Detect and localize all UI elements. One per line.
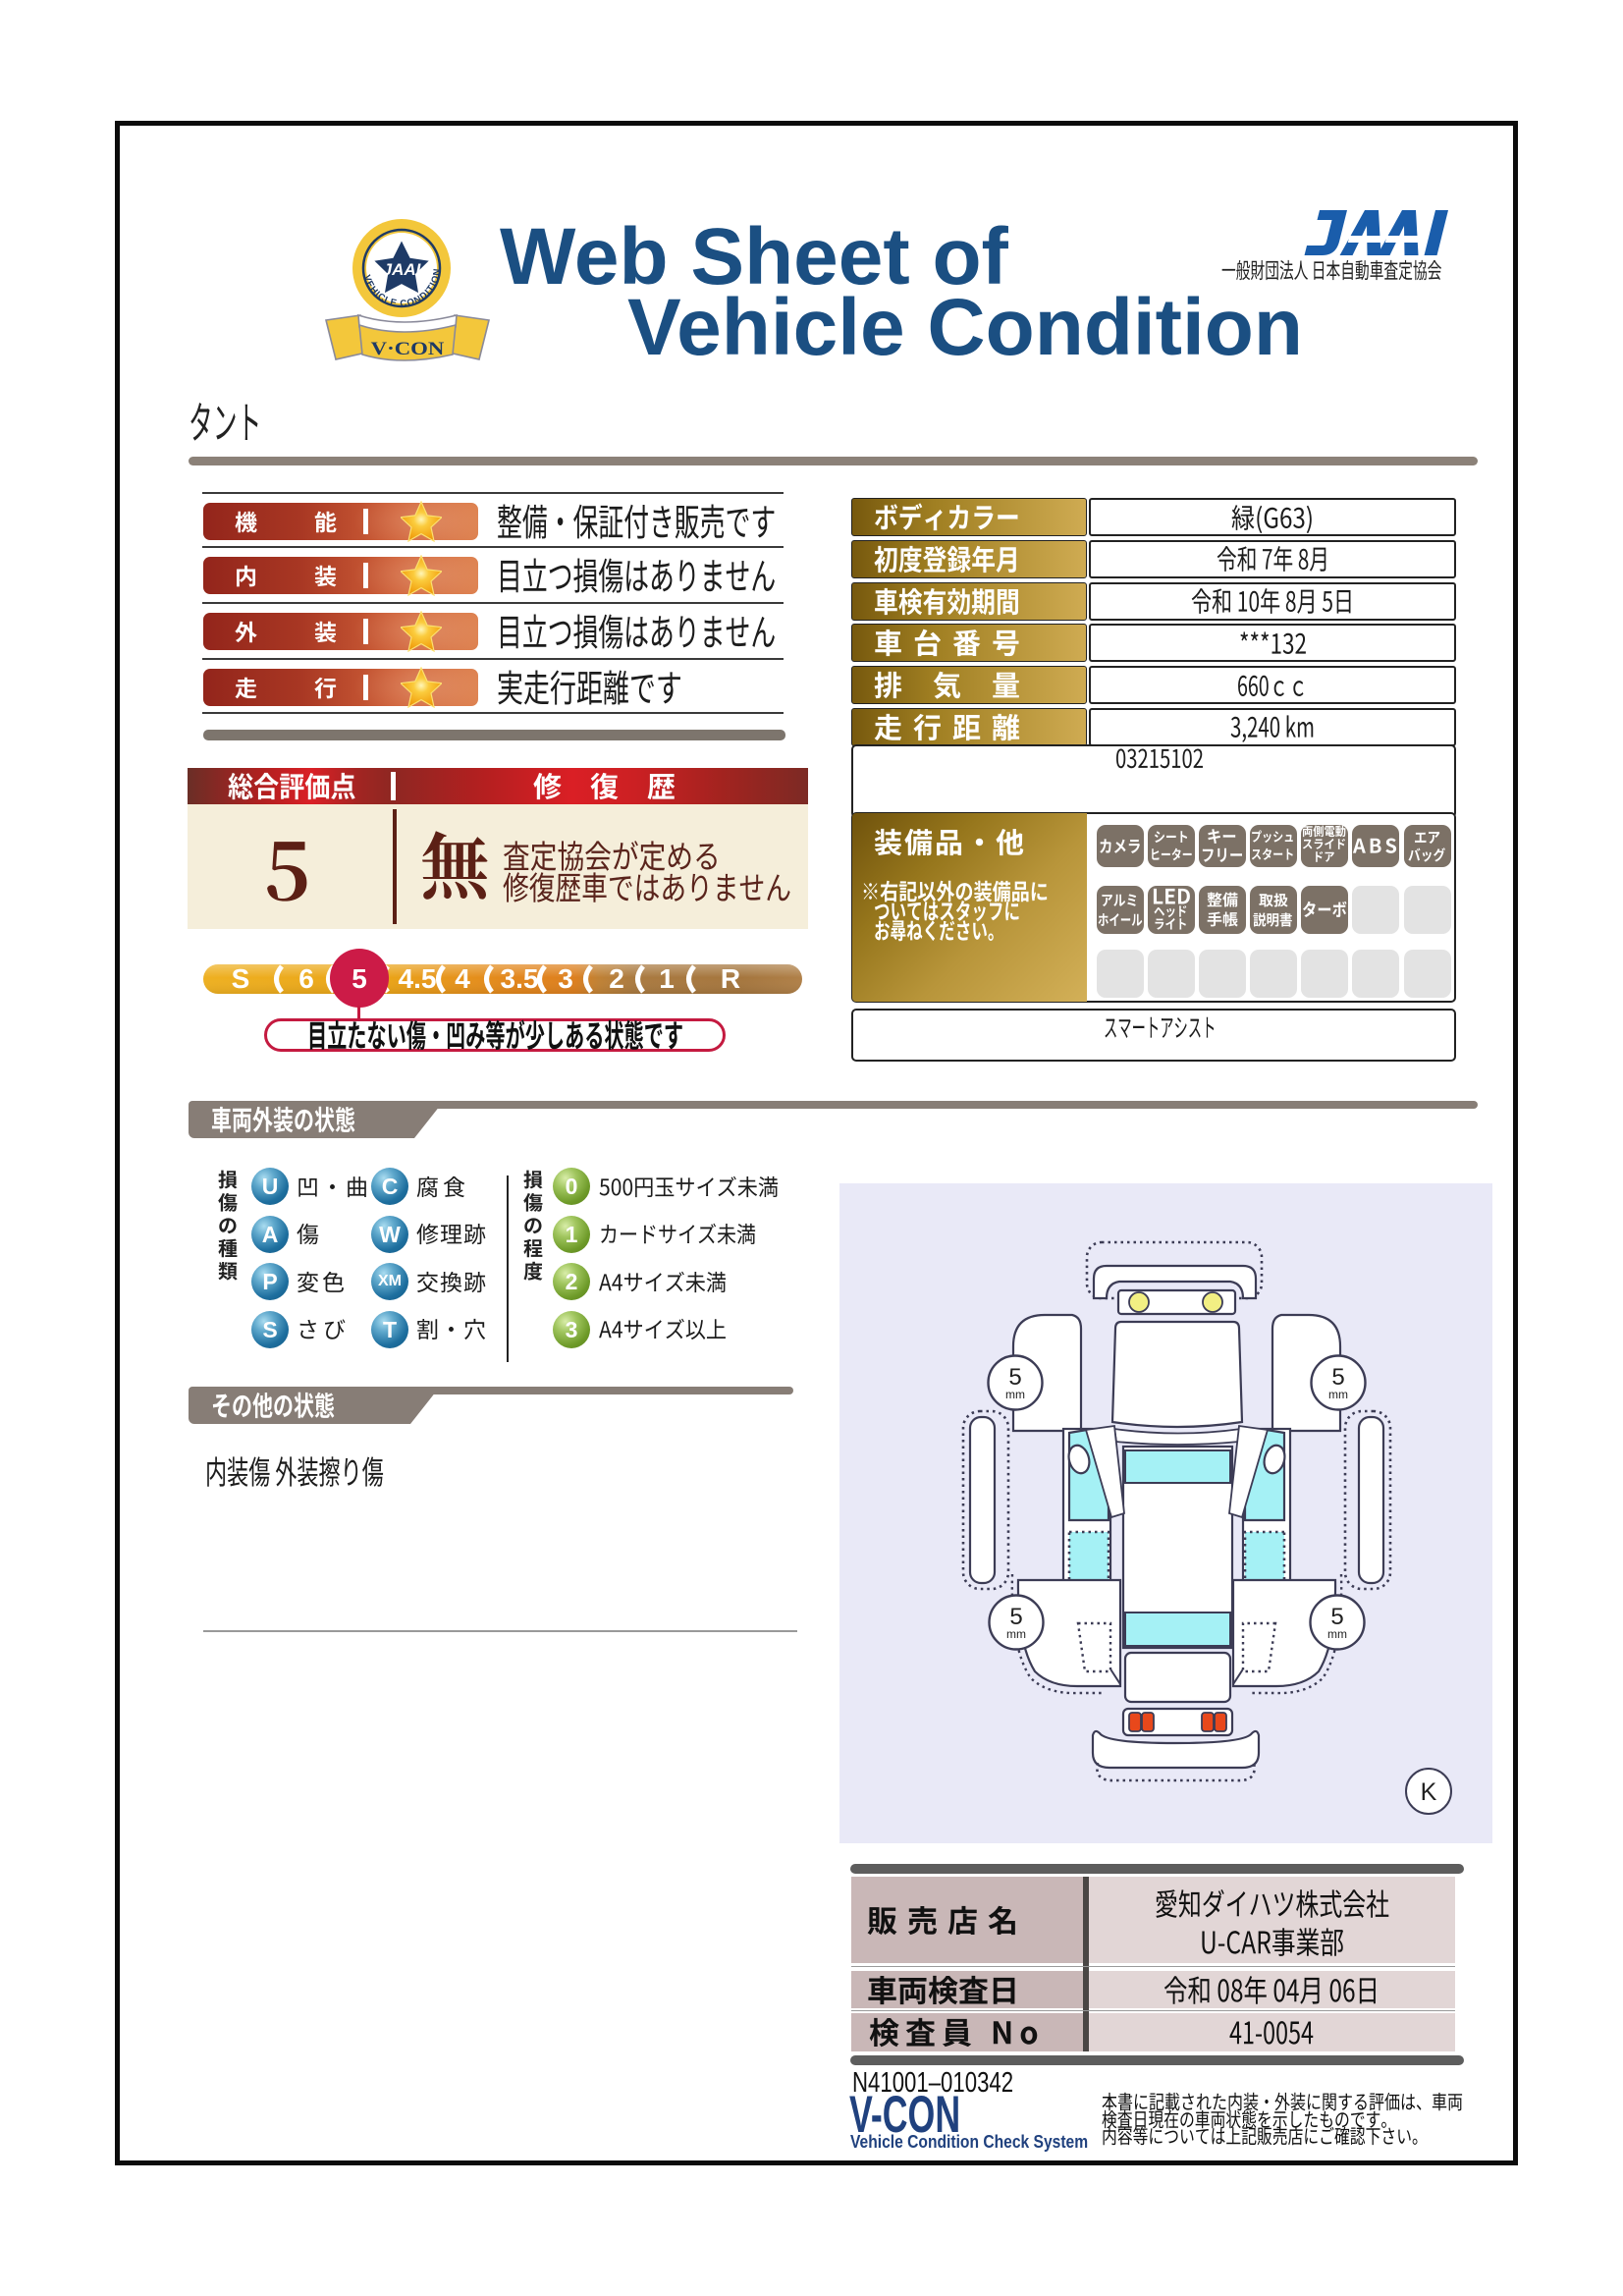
svg-text:2: 2 <box>609 963 624 994</box>
svg-text:5: 5 <box>1008 1364 1021 1391</box>
svg-text:mm: mm <box>1327 1627 1347 1641</box>
svg-text:V·CON: V·CON <box>371 338 445 359</box>
svg-text:4.5: 4.5 <box>399 963 437 994</box>
svg-text:mm: mm <box>1006 1627 1026 1641</box>
svg-text:5: 5 <box>1330 1604 1343 1630</box>
svg-text:6: 6 <box>298 963 314 994</box>
svg-text:R: R <box>721 963 740 994</box>
svg-text:1: 1 <box>659 963 675 994</box>
svg-text:3.5: 3.5 <box>501 963 539 994</box>
svg-text:5: 5 <box>352 963 367 994</box>
svg-text:mm: mm <box>1005 1388 1025 1401</box>
svg-text:S: S <box>232 963 250 994</box>
svg-text:JAAI: JAAI <box>383 260 422 279</box>
svg-text:3: 3 <box>558 963 573 994</box>
svg-text:5: 5 <box>1009 1604 1022 1630</box>
svg-text:4: 4 <box>455 963 470 994</box>
svg-text:K: K <box>1421 1778 1437 1806</box>
svg-text:5: 5 <box>1331 1364 1344 1391</box>
svg-text:mm: mm <box>1328 1388 1348 1401</box>
